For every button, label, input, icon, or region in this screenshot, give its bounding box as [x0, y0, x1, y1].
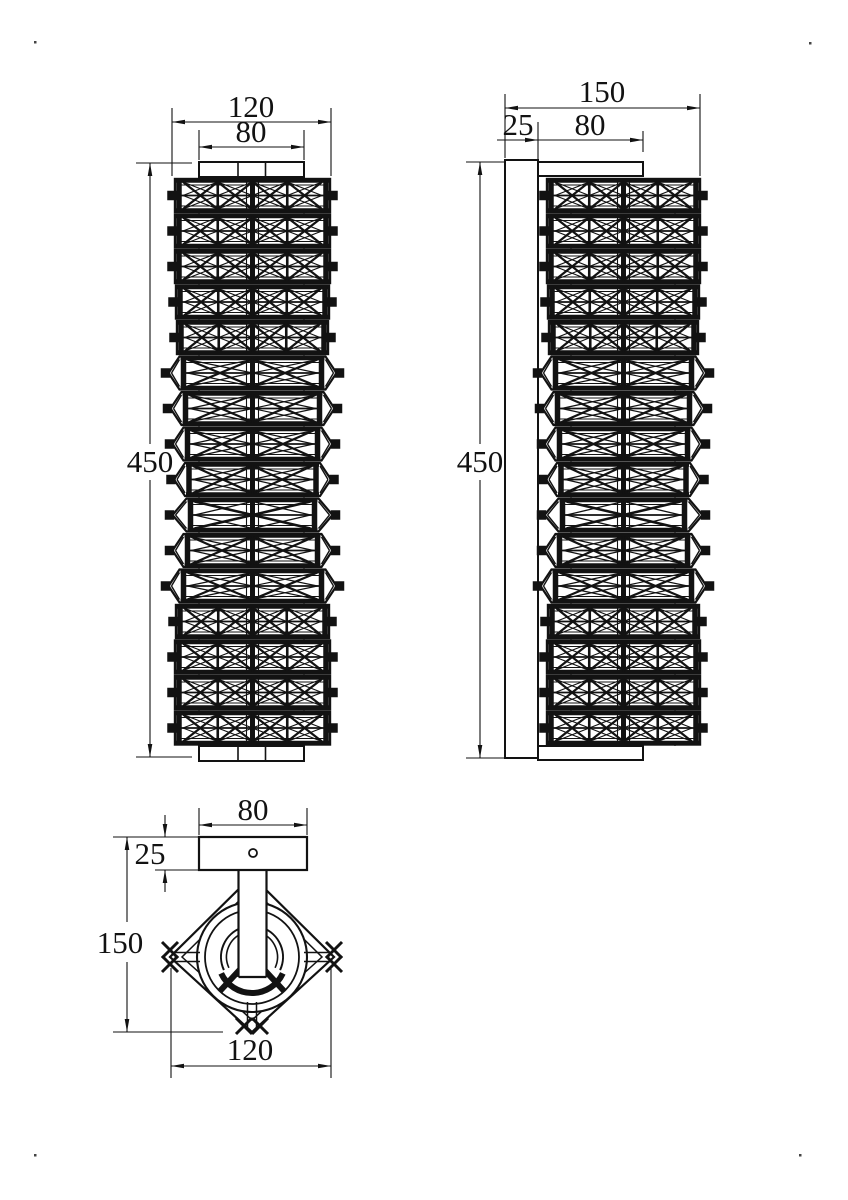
- segment-side-pin: [699, 192, 707, 200]
- dim-side-overall-depth: 150: [579, 74, 626, 109]
- dimension-arrow: [630, 138, 643, 143]
- segment-side-pin: [698, 618, 706, 626]
- crystal-segment: [540, 179, 707, 212]
- segment-side-pin: [164, 405, 172, 413]
- crystal-segment: [166, 428, 340, 461]
- segment-side-pin: [699, 653, 707, 661]
- segment-side-pin: [702, 511, 710, 519]
- crystal-segment: [166, 499, 340, 532]
- crystal-segment: [168, 712, 337, 745]
- dimension-arrow: [294, 823, 307, 828]
- dim-front-overall-height: 450: [127, 444, 174, 479]
- segment-side-pin: [329, 653, 337, 661]
- dimension-arrow: [171, 1064, 184, 1069]
- segment-side-pin: [538, 547, 546, 555]
- segment-side-pin: [540, 689, 548, 697]
- crystal-segment: [540, 215, 707, 248]
- dimension-arrow: [478, 162, 483, 175]
- crystal-segment: [538, 534, 710, 567]
- dim-plan-plate-depth: 25: [135, 836, 166, 871]
- segment-side-pin: [534, 369, 542, 377]
- segment-side-pin: [540, 653, 548, 661]
- segment-side-pin: [540, 192, 548, 200]
- segment-side-pin: [702, 440, 710, 448]
- crystal-segment: [168, 250, 337, 283]
- crystal-segment: [540, 712, 707, 745]
- bottom-mount-plate: [199, 746, 304, 761]
- crystal-segment: [534, 357, 714, 390]
- segment-side-pin: [332, 547, 340, 555]
- dim-plan-plate-width: 80: [238, 792, 269, 827]
- dim-front-plate-width: 80: [236, 114, 267, 149]
- segment-side-pin: [336, 582, 344, 590]
- segment-side-pin: [699, 689, 707, 697]
- registration-dot: [799, 1154, 802, 1157]
- dimension-arrow: [125, 837, 130, 850]
- segment-side-pin: [329, 689, 337, 697]
- crystal-segment: [169, 605, 336, 638]
- dim-plan-overall-width: 120: [227, 1032, 274, 1067]
- segment-side-pin: [162, 369, 170, 377]
- dim-plan-overall-projection: 150: [97, 925, 144, 960]
- crystal-segment: [540, 641, 707, 674]
- segment-side-pin: [704, 405, 712, 413]
- dimension-arrow: [199, 823, 212, 828]
- dimension-arrow: [478, 745, 483, 758]
- crystal-segment: [538, 499, 710, 532]
- segment-side-pin: [538, 440, 546, 448]
- crystal-segment: [169, 286, 336, 319]
- segment-side-pin: [168, 724, 176, 732]
- wall-backplate: [505, 160, 538, 758]
- segment-side-pin: [169, 298, 177, 306]
- segment-side-pin: [168, 192, 176, 200]
- segment-side-pin: [541, 298, 549, 306]
- dimension-arrow: [291, 145, 304, 150]
- segment-side-pin: [170, 334, 178, 342]
- segment-side-pin: [706, 582, 714, 590]
- crystal-segment: [162, 357, 344, 390]
- segment-side-pin: [699, 227, 707, 235]
- crystal-segment: [166, 534, 340, 567]
- dimension-arrow: [318, 120, 331, 125]
- dimension-arrow: [199, 145, 212, 150]
- segment-side-pin: [697, 334, 705, 342]
- dimension-arrow: [125, 1019, 130, 1032]
- registration-dot: [809, 42, 812, 45]
- technical-drawing-canvas: 1208045015025804508025150120: [0, 0, 848, 1200]
- segment-side-pin: [698, 298, 706, 306]
- segment-side-pin: [162, 582, 170, 590]
- crystal-segment: [168, 179, 337, 212]
- screw-hole: [249, 849, 257, 857]
- registration-dot: [34, 1154, 37, 1157]
- top-bracket: [538, 162, 643, 176]
- crystal-segment: [162, 570, 344, 603]
- crystal-segment: [541, 605, 706, 638]
- segment-side-pin: [336, 369, 344, 377]
- crystal-segment: [168, 215, 337, 248]
- segment-side-pin: [702, 547, 710, 555]
- segment-side-pin: [330, 476, 338, 484]
- segment-side-pin: [534, 582, 542, 590]
- dimension-arrow: [318, 1064, 331, 1069]
- segment-side-pin: [706, 369, 714, 377]
- segment-side-pin: [542, 334, 550, 342]
- segment-side-pin: [169, 618, 177, 626]
- segment-side-pin: [329, 724, 337, 732]
- side-elevation-view: [505, 160, 714, 760]
- dim-side-backplate-depth: 25: [503, 107, 534, 142]
- segment-side-pin: [328, 298, 336, 306]
- crystal-segment: [541, 286, 706, 319]
- segment-side-pin: [332, 440, 340, 448]
- segment-side-pin: [328, 618, 336, 626]
- registration-dot: [34, 41, 37, 44]
- crystal-segment: [167, 463, 338, 496]
- top-mount-plate: [199, 162, 304, 177]
- segment-side-pin: [334, 405, 342, 413]
- segment-side-pin: [168, 653, 176, 661]
- bottom-bracket: [538, 746, 643, 760]
- segment-side-pin: [699, 263, 707, 271]
- segment-side-pin: [536, 405, 544, 413]
- crystal-segment: [534, 570, 714, 603]
- dim-side-bracket-depth: 80: [575, 107, 606, 142]
- segment-side-pin: [166, 547, 174, 555]
- dimension-arrow: [148, 163, 153, 176]
- segment-side-pin: [168, 689, 176, 697]
- segment-side-pin: [332, 511, 340, 519]
- segment-side-pin: [168, 263, 176, 271]
- segment-side-pin: [329, 263, 337, 271]
- segment-side-pin: [168, 227, 176, 235]
- crystal-segment: [170, 321, 335, 354]
- dim-side-overall-height: 450: [457, 444, 504, 479]
- segment-side-pin: [541, 618, 549, 626]
- segment-side-pin: [327, 334, 335, 342]
- segment-side-pin: [329, 227, 337, 235]
- crystal-segment: [538, 428, 710, 461]
- dimension-arrow: [163, 870, 168, 883]
- segment-side-pin: [329, 192, 337, 200]
- bottom-plan-view: [162, 837, 342, 1034]
- segment-side-pin: [540, 263, 548, 271]
- crystal-segment: [540, 676, 707, 709]
- segment-side-pin: [539, 476, 547, 484]
- crystal-segment: [540, 250, 707, 283]
- front-elevation-view: [162, 162, 344, 761]
- segment-side-pin: [699, 724, 707, 732]
- crystal-segment: [536, 392, 712, 425]
- crystal-segment: [164, 392, 342, 425]
- segment-side-pin: [540, 724, 548, 732]
- crystal-segment: [539, 463, 708, 496]
- dimension-arrow: [172, 120, 185, 125]
- crystal-segment: [168, 676, 337, 709]
- dimension-arrow: [148, 744, 153, 757]
- stem-mask: [239, 871, 267, 977]
- crystal-segment: [168, 641, 337, 674]
- segment-side-pin: [540, 227, 548, 235]
- segment-side-pin: [166, 511, 174, 519]
- dimension-arrow: [687, 106, 700, 111]
- crystal-segment: [542, 321, 705, 354]
- segment-side-pin: [538, 511, 546, 519]
- drawing-page: 1208045015025804508025150120: [0, 0, 848, 1200]
- segment-side-pin: [700, 476, 708, 484]
